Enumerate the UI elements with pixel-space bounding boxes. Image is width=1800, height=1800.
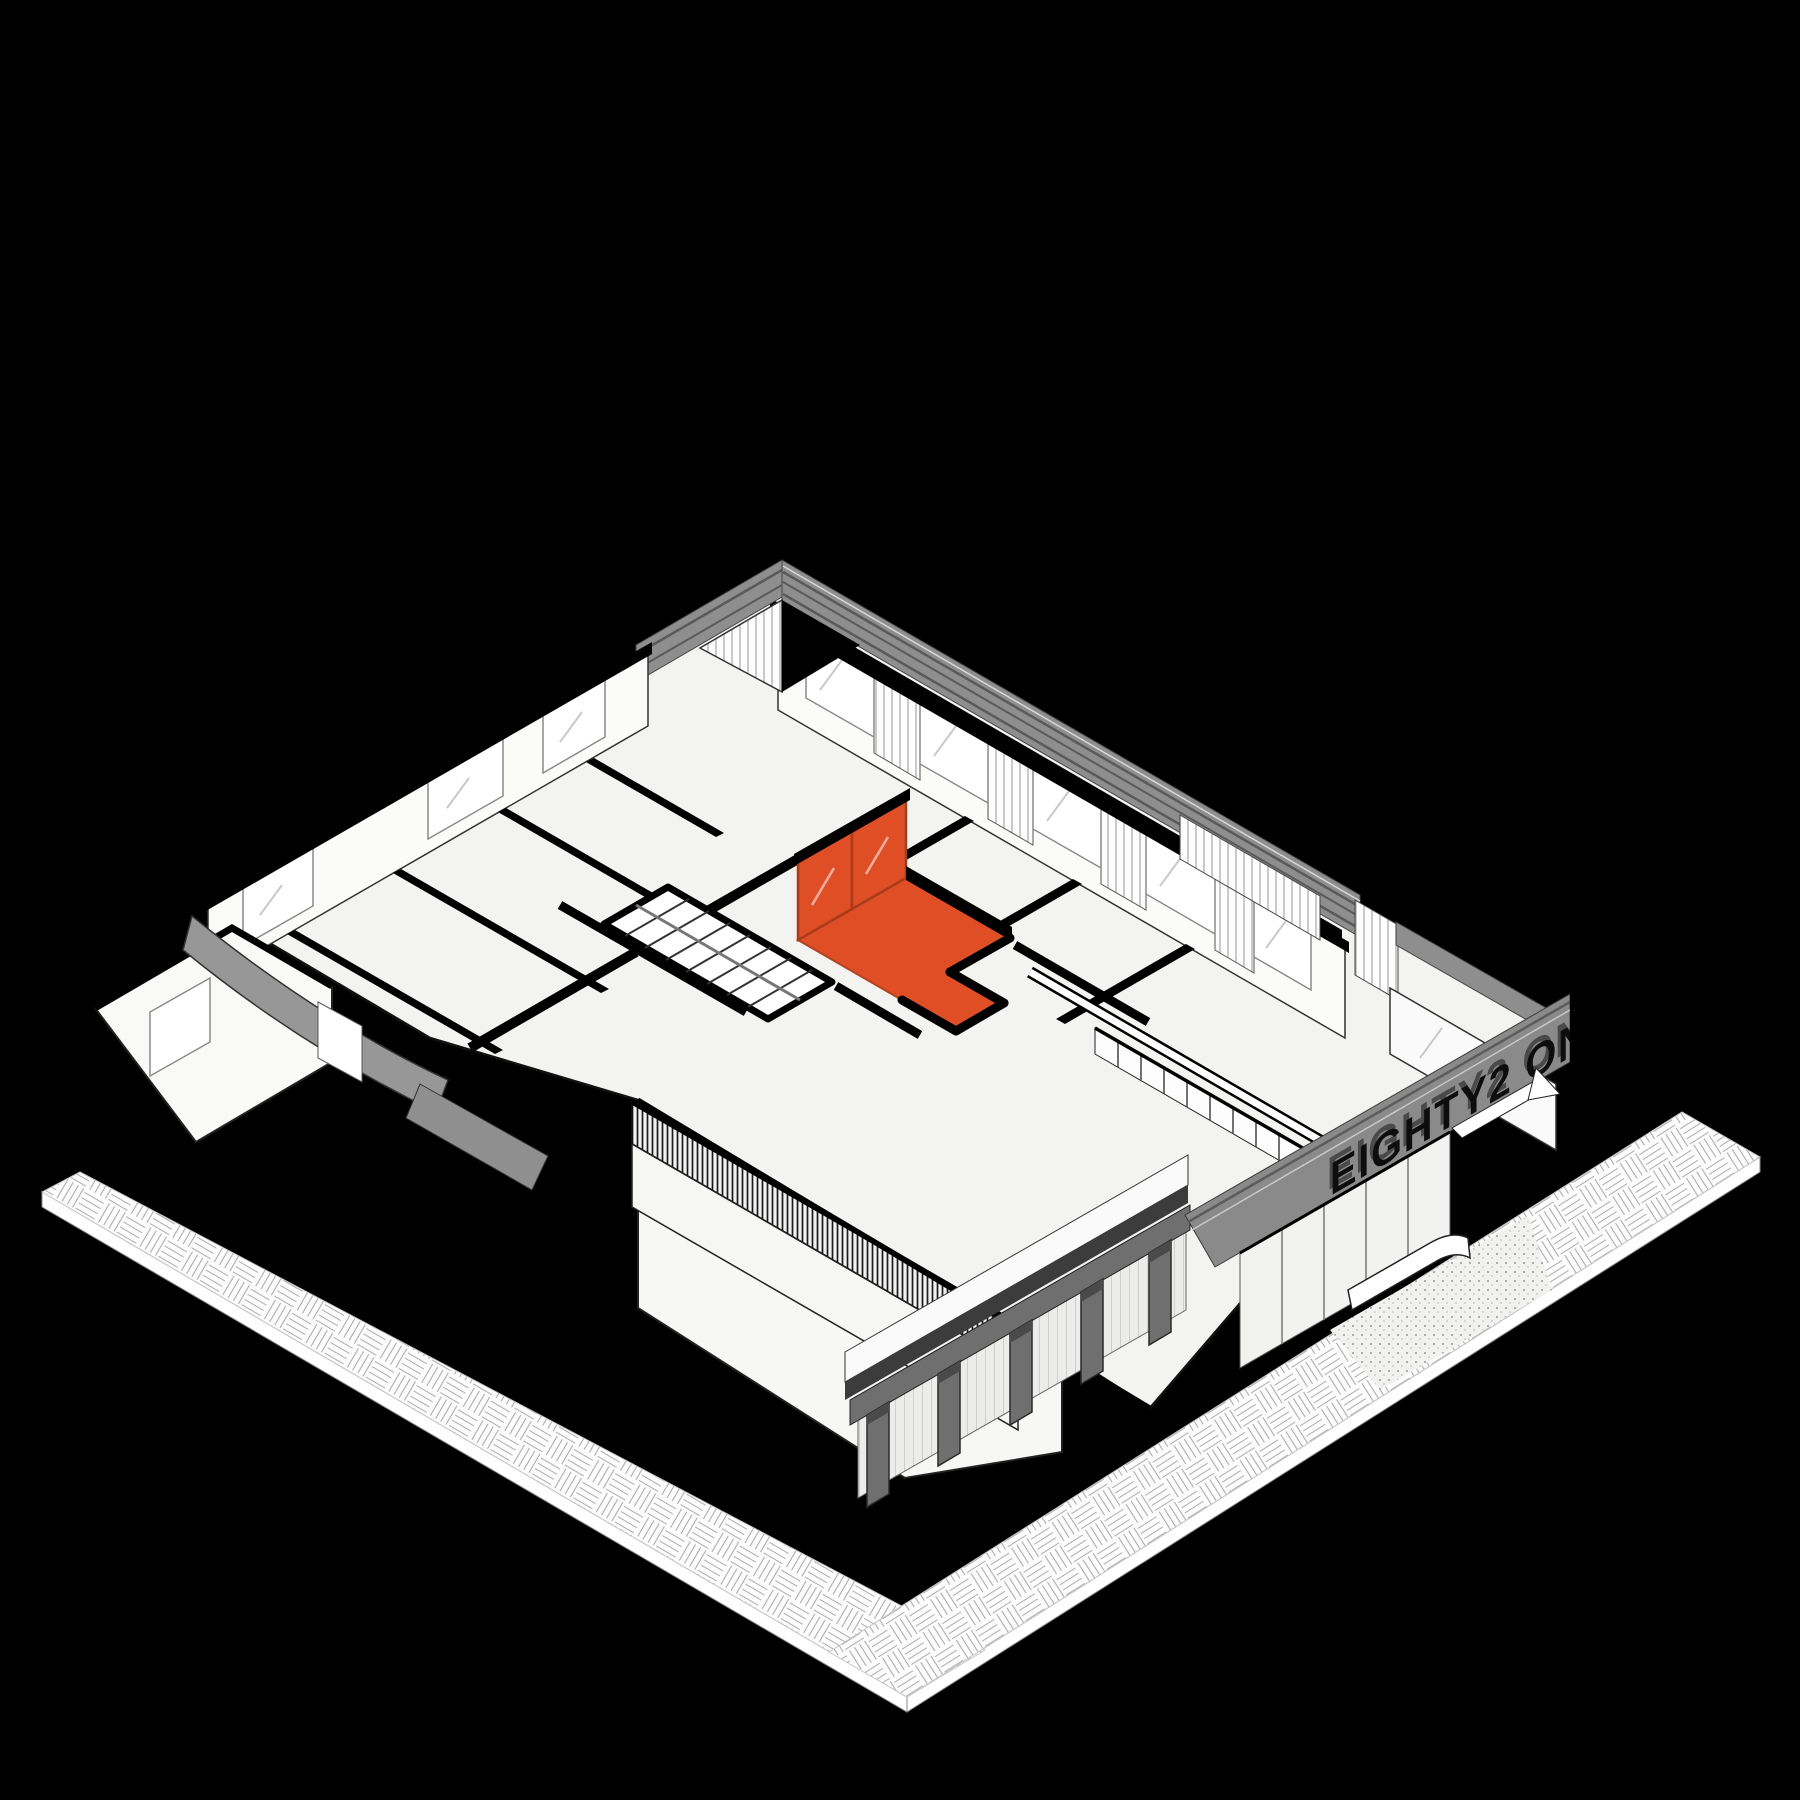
curved-wall-window <box>318 1002 362 1082</box>
curved-gray-wall-lower <box>406 1084 548 1190</box>
building-axonometric: EIGHTY2 ON M EIGHTY2 ON M <box>0 0 1800 1800</box>
column <box>1010 1320 1032 1425</box>
column <box>1081 1279 1103 1384</box>
column <box>938 1361 960 1466</box>
drawing-crop-mask <box>1570 900 1800 1105</box>
axonometric-canvas: EIGHTY2 ON M EIGHTY2 ON M <box>0 0 1800 1800</box>
column <box>1149 1240 1171 1345</box>
column <box>867 1402 889 1507</box>
